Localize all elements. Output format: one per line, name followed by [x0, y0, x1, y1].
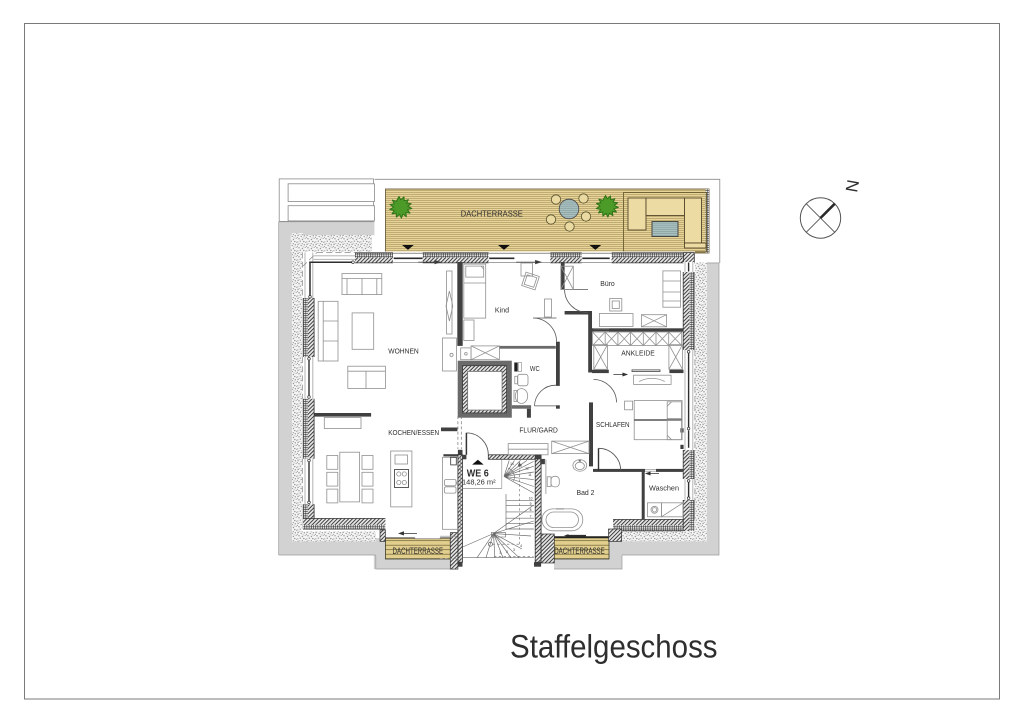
- svg-text:ANKLEIDE: ANKLEIDE: [621, 351, 655, 358]
- svg-text:DACHTERRASSE: DACHTERRASSE: [461, 209, 523, 218]
- svg-text:8: 8: [530, 508, 532, 512]
- svg-text:12: 12: [525, 467, 529, 471]
- svg-text:WC: WC: [530, 366, 540, 373]
- svg-text:Staffelgeschoss: Staffelgeschoss: [510, 629, 718, 665]
- svg-text:FLUR/GARD: FLUR/GARD: [519, 428, 558, 435]
- svg-text:2: 2: [506, 550, 508, 554]
- svg-text:3: 3: [513, 548, 515, 552]
- svg-text:148,26 m²: 148,26 m²: [462, 478, 496, 487]
- svg-text:WOHNEN: WOHNEN: [388, 349, 419, 356]
- svg-text:11: 11: [528, 473, 532, 477]
- svg-text:Kind: Kind: [495, 308, 509, 315]
- svg-text:10: 10: [529, 496, 533, 500]
- svg-text:DACHTERRASSE: DACHTERRASSE: [554, 545, 605, 556]
- svg-text:1: 1: [499, 551, 501, 555]
- svg-text:DACHTERRASSE: DACHTERRASSE: [393, 545, 444, 556]
- svg-text:4: 4: [520, 544, 522, 548]
- svg-text:7: 7: [530, 514, 532, 518]
- svg-text:KOCHEN/ESSEN: KOCHEN/ESSEN: [388, 430, 439, 437]
- svg-text:Bad 2: Bad 2: [577, 490, 595, 497]
- svg-text:N: N: [842, 178, 863, 193]
- svg-text:13: 13: [518, 464, 522, 468]
- svg-text:14: 14: [510, 462, 514, 466]
- svg-text:9: 9: [530, 502, 532, 506]
- svg-text:Waschen: Waschen: [649, 486, 679, 493]
- svg-text:Büro: Büro: [600, 281, 615, 288]
- svg-text:SCHLAFEN: SCHLAFEN: [596, 422, 630, 429]
